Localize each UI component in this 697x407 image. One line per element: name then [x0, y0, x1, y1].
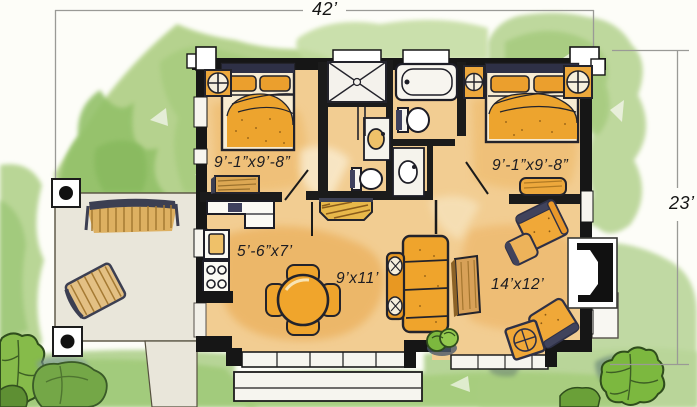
svg-text:5’-6”x7’: 5’-6”x7’: [237, 243, 293, 260]
svg-text:9’x11’: 9’x11’: [336, 270, 379, 287]
svg-text:9’-1”x9’-8”: 9’-1”x9’-8”: [214, 154, 291, 171]
svg-text:14’x12’: 14’x12’: [491, 276, 544, 293]
svg-text:23’: 23’: [668, 193, 695, 213]
svg-text:42’: 42’: [312, 0, 338, 19]
svg-text:9’-1”x9’-8”: 9’-1”x9’-8”: [492, 157, 569, 174]
